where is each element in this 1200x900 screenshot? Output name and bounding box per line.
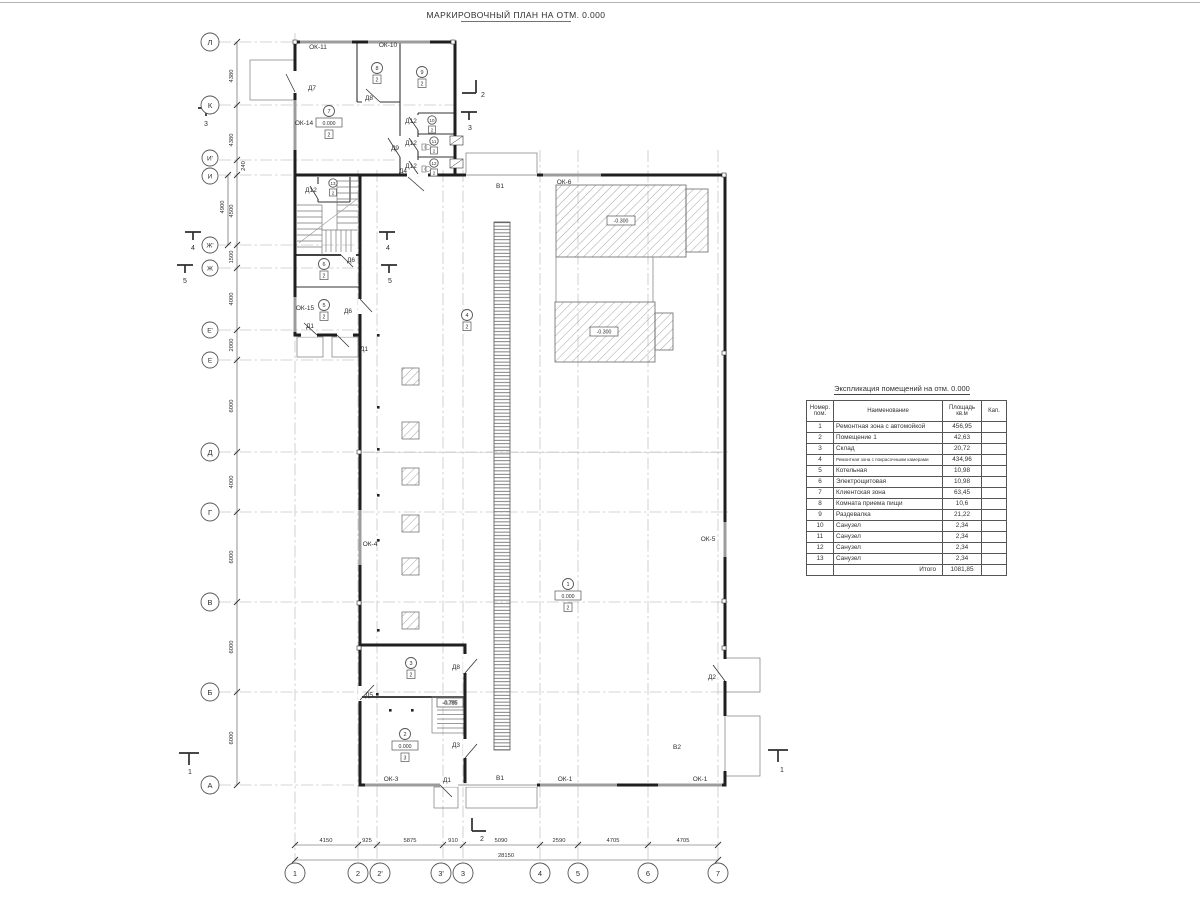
svg-text:В: В — [207, 598, 212, 607]
stair-elevation: -0.785 — [443, 701, 458, 707]
schedule-row: 7Клиентская зона63,45 — [807, 488, 1007, 499]
porch-d7 — [250, 60, 295, 100]
room-markers: 1 0.000 2 2 0.000 3 3 2 4 2 5 2 6 2 7 0.… — [316, 63, 581, 762]
svg-text:4000: 4000 — [229, 293, 235, 306]
svg-text:6: 6 — [322, 262, 325, 268]
svg-text:8: 8 — [375, 66, 378, 72]
svg-text:7: 7 — [327, 109, 330, 115]
svg-text:5: 5 — [322, 303, 325, 309]
svg-text:Д: Д — [207, 448, 212, 457]
pit2-elevation: -0.300 — [597, 330, 612, 336]
toilet-icon — [422, 166, 431, 172]
door-label: Д9 — [391, 145, 399, 152]
svg-text:925: 925 — [362, 838, 372, 844]
svg-text:4705: 4705 — [607, 838, 620, 844]
schedule-row: 10Санузел2,34 — [807, 521, 1007, 532]
svg-text:2: 2 — [323, 315, 326, 321]
door-label: Д6 — [347, 257, 355, 264]
svg-text:2590: 2590 — [553, 838, 566, 844]
svg-text:6000: 6000 — [229, 732, 235, 745]
svg-text:2: 2 — [328, 133, 331, 139]
svg-text:Л: Л — [208, 38, 213, 47]
schedule-row: 9Раздевалка21,22 — [807, 510, 1007, 521]
svg-text:2: 2 — [466, 325, 469, 331]
svg-text:Е': Е' — [207, 328, 213, 335]
svg-text:Ж: Ж — [207, 266, 213, 273]
svg-text:Ж': Ж' — [206, 243, 213, 250]
window-label: ОК-3 — [384, 776, 399, 783]
svg-text:4380: 4380 — [229, 70, 235, 83]
svg-text:1: 1 — [566, 582, 569, 588]
svg-text:2: 2 — [421, 82, 424, 88]
svg-text:3: 3 — [461, 869, 465, 878]
schedule-col-area: Площадь кв.м — [943, 401, 982, 422]
room-marker-3: 3 2 — [406, 658, 417, 679]
toilet-icon — [422, 144, 431, 150]
svg-text:3: 3 — [409, 661, 412, 667]
svg-text:2: 2 — [403, 732, 406, 738]
door-label: Д1 — [360, 346, 368, 353]
gate-label: В1 — [496, 183, 504, 190]
schedule-row: 1Ремонтная зона с автомойкой456,95 — [807, 422, 1007, 433]
window-label: ОК-4 — [363, 541, 378, 548]
schedule-row: 8Комната приема пищи10,6 — [807, 499, 1007, 510]
schedule-title: Экспликация помещений на отм. 0.000 — [806, 384, 998, 393]
svg-text:0.000: 0.000 — [562, 594, 575, 600]
svg-text:4: 4 — [538, 869, 542, 878]
window-label: ОК-5 — [701, 536, 716, 543]
schedule-col-num: Номер. пом. — [807, 401, 834, 422]
svg-text:4: 4 — [191, 245, 195, 252]
window-label: ОК-11 — [309, 44, 327, 51]
schedule-table: Номер. пом. Наименование Площадь кв.м Ка… — [806, 400, 1007, 576]
room-marker-13: 13 2 — [329, 179, 337, 196]
svg-text:240: 240 — [241, 161, 247, 171]
svg-text:10: 10 — [429, 118, 435, 123]
floor-plan-canvas: МАРКИРОВОЧНЫЙ ПЛАН НА ОТМ. 0.000 -0.300 — [0, 0, 1200, 900]
svg-text:4000: 4000 — [229, 476, 235, 489]
door-label: Д12 — [405, 163, 417, 170]
svg-text:6000: 6000 — [229, 551, 235, 564]
svg-text:3: 3 — [404, 756, 407, 762]
svg-text:4900: 4900 — [220, 201, 226, 214]
room-marker-2: 2 0.000 3 — [392, 729, 418, 762]
window-label: ОК-15 — [296, 305, 315, 312]
sanitary-fixtures — [422, 136, 463, 172]
svg-text:Е: Е — [208, 358, 213, 365]
svg-text:7: 7 — [716, 869, 720, 878]
window-label: ОК-1 — [558, 776, 573, 783]
room-marker-10: 10 2 — [428, 116, 436, 133]
schedule-row: 2Помещение 142,63 — [807, 433, 1007, 444]
svg-text:5090: 5090 — [495, 838, 508, 844]
conveyor-strip — [494, 222, 510, 750]
drawing-sheet: МАРКИРОВОЧНЫЙ ПЛАН НА ОТМ. 0.000 -0.300 — [0, 0, 1200, 900]
svg-text:5875: 5875 — [404, 838, 417, 844]
window-label: ОК-1 — [693, 776, 708, 783]
block-stairs: -0.785 — [432, 697, 465, 733]
room-marker-6: 6 2 — [319, 259, 330, 280]
door-label: Д1 — [443, 777, 451, 784]
svg-text:2': 2' — [377, 869, 383, 878]
door-label: Д5 — [365, 692, 373, 699]
door-label: Д6 — [344, 308, 352, 315]
door-label: Д12 — [405, 140, 417, 147]
svg-text:0.000: 0.000 — [399, 744, 412, 750]
svg-text:2: 2 — [323, 274, 326, 280]
room-marker-5: 5 2 — [319, 300, 330, 321]
gate-label: В1 — [496, 775, 504, 782]
svg-text:6000: 6000 — [229, 641, 235, 654]
room-marker-7: 7 0.000 2 — [316, 106, 342, 139]
pit1-elevation: -0.300 — [614, 219, 629, 225]
svg-text:2: 2 — [567, 606, 570, 612]
door-label: Д12 — [405, 118, 417, 125]
svg-text:И': И' — [207, 156, 213, 163]
door-label: Д1 — [306, 323, 314, 330]
svg-text:2: 2 — [376, 78, 379, 84]
room-marker-9: 9 2 — [417, 67, 428, 88]
svg-text:2: 2 — [481, 92, 485, 99]
svg-text:Г: Г — [208, 508, 212, 517]
column-bubbles: 1 2 2' 3' 3 4 5 6 7 — [285, 863, 728, 883]
floor-features: -0.300 -0.300 — [376, 185, 708, 750]
room-marker-8: 8 2 — [372, 63, 383, 84]
svg-text:Б: Б — [208, 688, 213, 697]
gate-v1-top-apron — [466, 153, 537, 175]
schedule-col-name: Наименование — [834, 401, 943, 422]
svg-text:К: К — [208, 101, 213, 110]
gate-v2-apron — [725, 716, 760, 776]
window-label: ОК-6 — [557, 179, 572, 186]
svg-text:9: 9 — [420, 70, 423, 76]
door-label: Д7 — [308, 85, 316, 92]
svg-text:12: 12 — [431, 161, 437, 166]
svg-text:6000: 6000 — [229, 400, 235, 413]
door-label: Д8 — [452, 664, 460, 671]
svg-text:2000: 2000 — [229, 339, 235, 352]
svg-text:4705: 4705 — [677, 838, 690, 844]
svg-text:1500: 1500 — [229, 251, 235, 264]
svg-text:3: 3 — [204, 121, 208, 128]
schedule-row: 3Склад20,72 — [807, 444, 1007, 455]
window-label: ОК-14 — [295, 120, 314, 127]
room-schedule: Экспликация помещений на отм. 0.000 Номе… — [806, 384, 998, 576]
svg-text:1: 1 — [780, 767, 784, 774]
svg-text:А: А — [207, 781, 212, 790]
svg-text:4: 4 — [465, 313, 468, 319]
svg-text:4380: 4380 — [229, 134, 235, 147]
schedule-row: 6Электрощитовая10,98 — [807, 477, 1007, 488]
svg-text:2: 2 — [410, 673, 413, 679]
svg-text:4500: 4500 — [229, 205, 235, 218]
svg-text:1: 1 — [293, 869, 297, 878]
schedule-row: 11Санузел2,34 — [807, 532, 1007, 543]
svg-text:1: 1 — [188, 769, 192, 776]
svg-text:3': 3' — [438, 869, 444, 878]
gate-label: В2 — [673, 744, 681, 751]
plan-title: МАРКИРОВОЧНЫЙ ПЛАН НА ОТМ. 0.000 — [427, 9, 606, 22]
svg-text:2: 2 — [356, 869, 360, 878]
svg-text:13: 13 — [330, 181, 336, 186]
row-bubbles: Л К И' И Ж' Ж Е' Е Д Г В Б А — [201, 33, 219, 794]
svg-text:0.000: 0.000 — [323, 121, 336, 127]
svg-text:11: 11 — [432, 139, 437, 144]
svg-text:6: 6 — [646, 869, 650, 878]
svg-text:4: 4 — [386, 245, 390, 252]
door-label: Д2 — [708, 674, 716, 681]
overall-dimension: 28150 — [498, 853, 514, 859]
door-d1-steps — [434, 787, 458, 808]
svg-text:2: 2 — [480, 836, 484, 843]
svg-text:И: И — [208, 174, 213, 181]
door-d2-vestibule — [725, 658, 760, 692]
schedule-row: 4Ремонтная зона с покрасочными камерами4… — [807, 455, 1007, 466]
schedule-row: 13Санузел2,34 — [807, 554, 1007, 565]
svg-text:3: 3 — [468, 125, 472, 132]
room-marker-1: 1 0.000 2 — [555, 579, 581, 612]
window-label: ОК-10 — [379, 42, 398, 49]
svg-text:5: 5 — [183, 278, 187, 285]
schedule-row: 5Котельная10,98 — [807, 466, 1007, 477]
door-label: Д8 — [365, 95, 373, 102]
schedule-col-cap: Кап. — [982, 401, 1007, 422]
schedule-row: 12Санузел2,34 — [807, 543, 1007, 554]
svg-text:4150: 4150 — [320, 838, 333, 844]
door-label: Д12 — [305, 187, 317, 194]
sheet-top-divider — [0, 2, 1200, 3]
door-label: Д3 — [452, 742, 460, 749]
svg-text:МАРКИРОВОЧНЫЙ ПЛАН НА ОТМ. 0.0: МАРКИРОВОЧНЫЙ ПЛАН НА ОТМ. 0.000 — [427, 9, 606, 20]
svg-text:910: 910 — [448, 838, 458, 844]
svg-text:5: 5 — [388, 278, 392, 285]
schedule-total-row: Итого1081,85 — [807, 565, 1007, 576]
svg-text:5: 5 — [576, 869, 580, 878]
gate-v1-bottom-apron — [466, 787, 537, 808]
